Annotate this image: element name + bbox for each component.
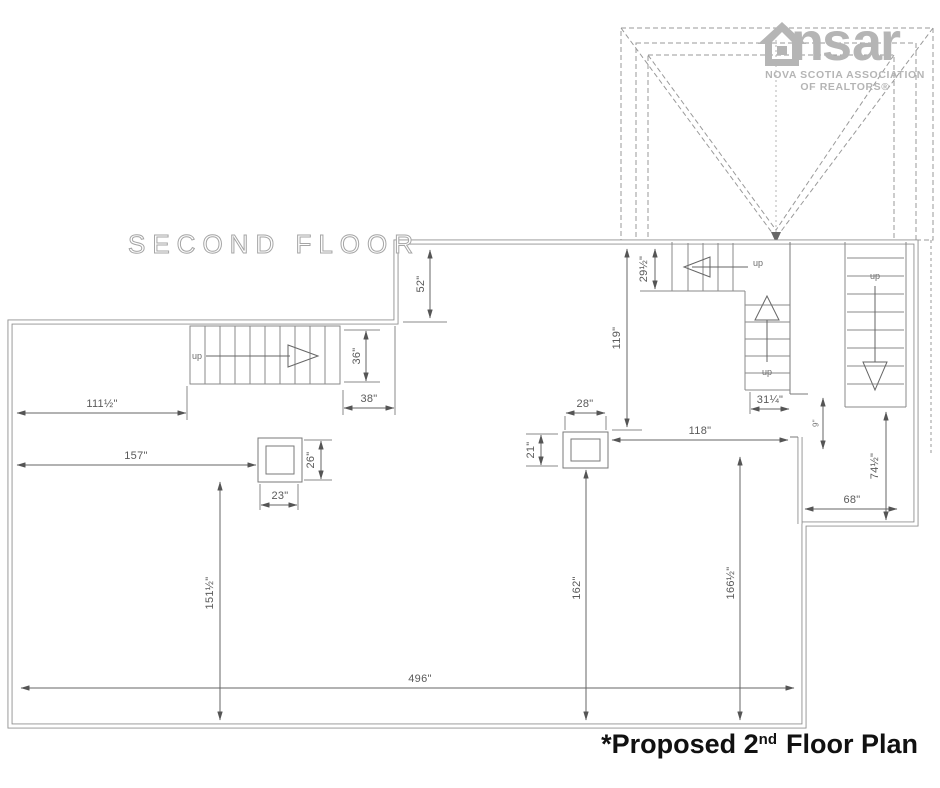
- dim-151half: 151½": [204, 577, 216, 610]
- stair-left-up-label: up: [192, 351, 202, 361]
- dim-111half: 111½": [86, 398, 117, 410]
- dim-74half: 74½": [869, 453, 881, 480]
- stair-right-up-label: up: [870, 271, 880, 281]
- dim-23: 23": [271, 490, 288, 502]
- dim-52: 52": [415, 275, 427, 292]
- floor-plan-page: SECOND FLOOR up up up up 52" 36" 38" 111…: [0, 0, 940, 788]
- chimney-left: [258, 438, 302, 482]
- dim-28: 28": [576, 398, 593, 410]
- floor-plan-drawing: [0, 0, 940, 788]
- dim-26: 26": [305, 451, 317, 468]
- dim-166half: 166½": [725, 567, 737, 600]
- dim-9: 9": [812, 419, 821, 427]
- nsar-logo: ns ar NOVA SCOTIA ASSOCIATION OF REALTOR…: [756, 20, 934, 93]
- dim-68: 68": [843, 494, 860, 506]
- stair-right: [845, 242, 906, 407]
- plan-caption-ordinal: nd: [759, 731, 777, 748]
- dim-36: 36": [351, 347, 363, 364]
- stair-mid-horizontal-up-label: up: [753, 258, 763, 268]
- dim-119: 119": [611, 327, 623, 350]
- stair-left: [190, 326, 340, 384]
- dim-29half: 29½": [638, 256, 650, 283]
- stair-mid-L: [672, 242, 790, 390]
- dim-496: 496": [408, 673, 431, 685]
- nsar-logo-association-line2: OF REALTORS®: [756, 81, 934, 93]
- dim-38: 38": [360, 393, 377, 405]
- dim-118: 118": [689, 425, 712, 437]
- nsar-logo-wordmark: ns ar: [756, 20, 934, 66]
- floor-title: SECOND FLOOR: [128, 229, 420, 260]
- interior-walls: [790, 242, 808, 437]
- plan-caption: *Proposed 2ndFloor Plan: [601, 729, 918, 760]
- nsar-logo-association-line1: NOVA SCOTIA ASSOCIATION: [756, 69, 934, 81]
- exterior-walls: [10, 242, 916, 726]
- dim-21: 21": [525, 441, 537, 458]
- nsar-logo-right-text: ar: [852, 20, 899, 66]
- stair-mid-vertical-up-label: up: [762, 367, 772, 377]
- dim-31quarter: 31¼": [757, 394, 784, 406]
- chimney-center: [563, 432, 608, 468]
- plan-caption-suffix: Floor Plan: [786, 729, 918, 759]
- dim-162: 162": [571, 576, 583, 599]
- dim-157: 157": [124, 450, 147, 462]
- plan-caption-prefix: *Proposed 2: [601, 729, 759, 759]
